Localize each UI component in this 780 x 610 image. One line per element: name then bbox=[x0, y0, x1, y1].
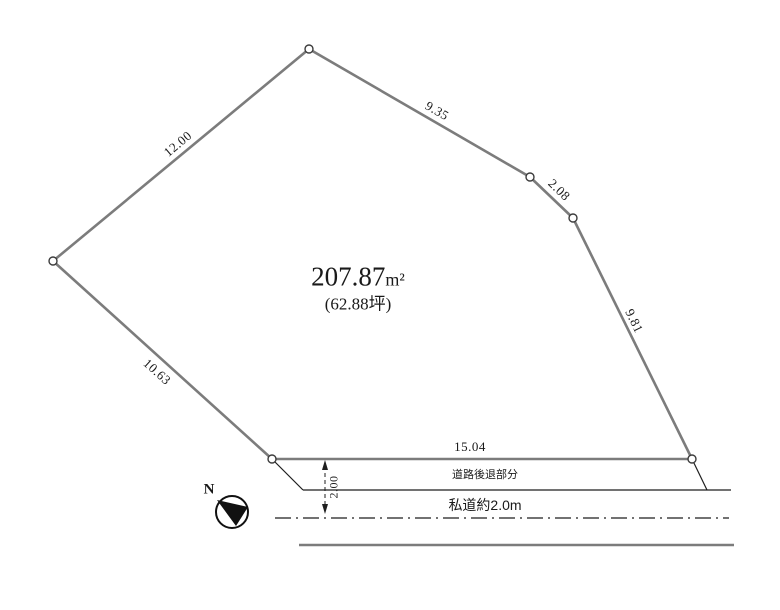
arrowhead-down-icon bbox=[322, 504, 328, 514]
vertex-marker bbox=[569, 214, 577, 222]
area-value: 207.87 bbox=[311, 262, 385, 292]
parcel-boundary bbox=[53, 49, 692, 459]
setback-side-line-right bbox=[692, 459, 707, 490]
setback-side-line-left bbox=[272, 459, 303, 490]
vertex-markers bbox=[49, 45, 696, 463]
boundary-edge-e bbox=[573, 218, 692, 459]
dimension-label-s: 15.04 bbox=[454, 439, 486, 455]
boundary-edge-n bbox=[309, 49, 530, 177]
north-label: N bbox=[204, 482, 215, 499]
north-compass-icon bbox=[216, 496, 248, 528]
land-survey-diagram: 12.00 9.35 2.08 9.81 10.63 15.04 2.00 20… bbox=[0, 0, 780, 610]
area-tsubo-label: (62.88坪) bbox=[325, 290, 392, 315]
vertex-marker bbox=[305, 45, 313, 53]
arrowhead-up-icon bbox=[322, 460, 328, 470]
boundary-edge-sw bbox=[53, 261, 272, 459]
area-label: 207.87m² bbox=[311, 262, 405, 293]
vertex-marker bbox=[526, 173, 534, 181]
vertex-marker bbox=[268, 455, 276, 463]
boundary-edge-nw bbox=[53, 49, 309, 261]
private-road-label: 私道約2.0m bbox=[448, 495, 521, 515]
setback-area-label: 道路後退部分 bbox=[452, 466, 518, 482]
vertex-marker bbox=[49, 257, 57, 265]
setback-depth-label: 2.00 bbox=[327, 476, 342, 499]
area-unit: m² bbox=[385, 270, 404, 290]
vertex-marker bbox=[688, 455, 696, 463]
